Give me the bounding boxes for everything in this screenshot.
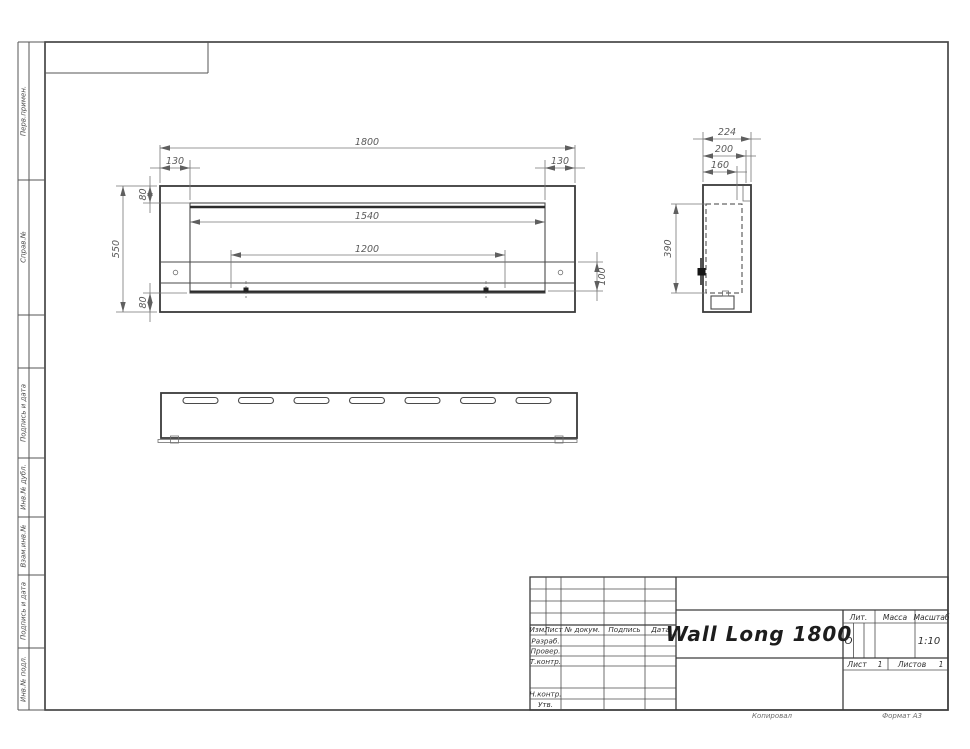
margin-label-podpis-data-2: Подпись и дата (20, 582, 28, 640)
front-right-tab (484, 288, 489, 293)
title-block: Изм. Лист № докум. Подпись Дата Разраб. … (529, 577, 949, 710)
vent-slot-7 (516, 398, 551, 404)
dim-550: 550 (111, 240, 122, 258)
top-view (158, 393, 577, 443)
dim-80-top: 80 (138, 188, 149, 200)
dim-224: 224 (718, 127, 736, 138)
top-left-stamp-cell (45, 42, 208, 73)
tb-row-nkontr: Н.контр. (529, 690, 561, 699)
footer-format-note: Формат А3 (882, 712, 922, 720)
margin-label-inv-podl: Инв.№ подл. (20, 656, 28, 702)
tb-sheet-value: 1 (878, 660, 883, 669)
tb-col-list: Лист (543, 625, 563, 634)
left-margin-column: Перв.примен. Справ.№ Подпись и дата Инв.… (18, 42, 45, 710)
product-name: Wall Long 1800 (666, 622, 853, 646)
tb-scale-label: Масштаб (913, 613, 949, 622)
margin-label-perv-primen: Перв.примен. (20, 86, 28, 136)
side-bottom-box (711, 296, 734, 309)
dim-200: 200 (715, 144, 733, 155)
tb-row-utv: Утв. (538, 700, 553, 709)
tb-col-podpis: Подпись (608, 625, 640, 634)
margin-label-sprav-no: Справ.№ (20, 231, 28, 263)
tb-sheets-label: Листов (897, 660, 927, 669)
dim-1800: 1800 (355, 137, 379, 148)
mounting-rail (158, 440, 577, 443)
dim-100: 100 (597, 267, 608, 285)
vent-slot-6 (461, 398, 496, 404)
front-view-dimensions: 1800 130 130 80 550 1540 1200 100 80 (111, 137, 608, 322)
side-wall-bracket-block (698, 268, 706, 276)
dim-390: 390 (663, 239, 674, 257)
side-view-dimensions: 224 200 160 390 (663, 127, 761, 293)
dim-1200: 1200 (355, 244, 379, 255)
margin-label-podpis-data-1: Подпись и дата (20, 384, 28, 442)
tb-mass-label: Масса (883, 613, 908, 622)
drawing-sheet: Перв.примен. Справ.№ Подпись и дата Инв.… (0, 0, 970, 749)
vent-slot-2 (239, 398, 274, 404)
dim-130-right: 130 (551, 156, 569, 167)
dim-130-left: 130 (166, 156, 184, 167)
dim-160: 160 (711, 160, 729, 171)
tb-col-dokum: № докум. (564, 625, 600, 634)
margin-label-vzam-inv: Взам.инв.№ (20, 524, 28, 567)
top-view-body (161, 393, 577, 438)
footer-labels: Копировал Формат А3 (752, 712, 922, 720)
tb-row-razrab: Разраб. (531, 637, 559, 646)
tb-row-tkontr: Т.контр. (530, 657, 561, 666)
margin-label-inv-dubl: Инв.№ дубл. (20, 464, 28, 510)
footer-copy-note: Копировал (752, 712, 793, 720)
tb-sheets-value: 1 (939, 660, 944, 669)
tb-sheet-label: Лист (846, 660, 867, 669)
side-top-bracket (743, 186, 751, 201)
front-left-hole (173, 270, 178, 275)
tb-lit-value: О (845, 636, 853, 647)
tb-lit-label: Лит. (849, 613, 867, 622)
tb-scale-value: 1:10 (918, 636, 940, 647)
front-left-tab (244, 288, 249, 293)
dim-80-bottom: 80 (138, 296, 149, 308)
dim-1540: 1540 (355, 211, 379, 222)
vent-slot-5 (405, 398, 440, 404)
front-right-hole (558, 270, 563, 275)
side-hidden-inner-box (706, 204, 742, 293)
vent-slot-4 (350, 398, 385, 404)
tb-row-prover: Провер. (531, 647, 561, 656)
vent-slot-1 (183, 398, 218, 404)
vent-slot-3 (294, 398, 329, 404)
